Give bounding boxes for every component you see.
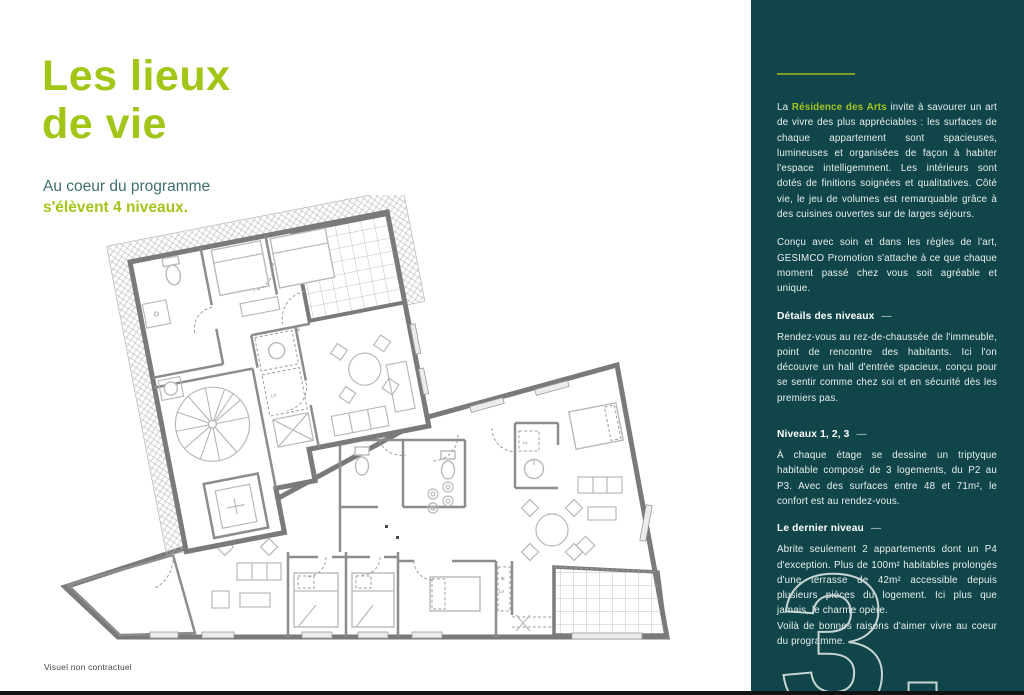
section-heading: Le dernier niveau—: [777, 522, 997, 536]
svg-text:3.: 3.: [779, 562, 956, 695]
svg-text:LL: LL: [523, 440, 529, 445]
section-body: À chaque étage se dessine un triptyque h…: [777, 448, 997, 509]
plan-caption: Visuel non contractuel: [44, 662, 132, 672]
bed: [569, 403, 623, 449]
paragraph-2: Conçu avec soin et dans les règles de l'…: [777, 235, 997, 296]
section-heading: Détails des niveaux—: [777, 310, 997, 324]
page-bottom-edge: [0, 691, 1024, 695]
bed: [270, 228, 335, 288]
page-title-line1: Les lieux: [42, 52, 231, 100]
section-body: Rendez-vous au rez-de-chaussée de l'imme…: [777, 330, 997, 406]
terrace-bottom-right: [554, 567, 666, 635]
page-title: Les lieux de vie: [42, 52, 231, 148]
floor-plan-drawing: ✳ LV LL: [40, 195, 710, 665]
bed: [294, 573, 338, 627]
accent-rule: [777, 73, 855, 75]
bed: [211, 241, 269, 296]
intro-prefix: La: [777, 102, 792, 113]
heading-dash: —: [871, 523, 881, 534]
subtitle-regular: Au coeur du programme: [43, 176, 210, 197]
sidebar: La Résidence des Arts invite à savourer …: [751, 0, 1024, 695]
page-number-outline: 3.: [773, 562, 1023, 695]
intro-rest: invite à savourer un art de vivre des pl…: [777, 102, 997, 220]
bed: [352, 573, 394, 627]
residence-name: Résidence des Arts: [792, 102, 887, 113]
heading-dash: —: [856, 429, 866, 440]
section-heading: Niveaux 1, 2, 3—: [777, 428, 997, 442]
intro-paragraph: La Résidence des Arts invite à savourer …: [777, 100, 997, 222]
section-niveaux-123: Niveaux 1, 2, 3— À chaque étage se dessi…: [777, 428, 997, 509]
toilet-icon: [355, 447, 369, 475]
page-title-line2: de vie: [42, 100, 167, 148]
svg-text:✳: ✳: [500, 575, 506, 583]
bed: [430, 577, 480, 611]
heading-dash: —: [881, 311, 891, 322]
section-details-niveaux: Détails des niveaux— Rendez-vous au rez-…: [777, 310, 997, 406]
